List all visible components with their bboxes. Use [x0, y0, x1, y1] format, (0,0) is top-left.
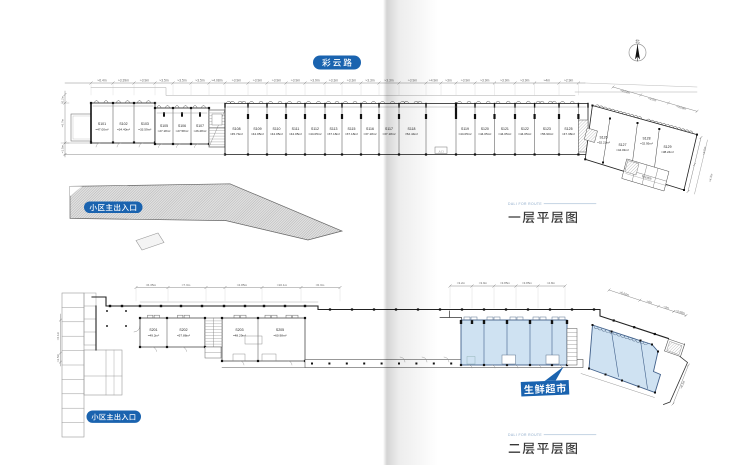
- svg-text:S107: S107: [196, 124, 204, 128]
- svg-text:≈3m: ≈3m: [445, 78, 452, 82]
- svg-text:S129: S129: [664, 145, 672, 149]
- svg-text:≈3.85m: ≈3.85m: [500, 281, 510, 285]
- svg-text:≈3.9m: ≈3.9m: [520, 78, 529, 82]
- svg-text:≈57.88m²: ≈57.88m²: [177, 333, 190, 337]
- svg-text:S205: S205: [276, 328, 284, 332]
- svg-text:S202: S202: [179, 328, 187, 332]
- svg-text:≈44.03m²: ≈44.03m²: [616, 148, 629, 152]
- svg-text:≈4.08m: ≈4.08m: [212, 78, 223, 82]
- svg-text:≈4m: ≈4m: [544, 78, 551, 82]
- svg-text:DALI FOR ROUTE: DALI FOR ROUTE: [508, 433, 542, 437]
- svg-text:≈6.7m: ≈6.7m: [60, 118, 64, 127]
- svg-text:≈3.5m: ≈3.5m: [195, 78, 204, 82]
- svg-text:≈3.9m: ≈3.9m: [232, 78, 241, 82]
- svg-text:≈3.85m: ≈3.85m: [522, 281, 532, 285]
- svg-text:≈3.2m: ≈3.2m: [457, 281, 466, 285]
- svg-text:≈44.05m²: ≈44.05m²: [251, 132, 264, 136]
- svg-text:≈3.9m: ≈3.9m: [140, 78, 149, 82]
- svg-text:≈27.58m²: ≈27.58m²: [176, 129, 189, 133]
- svg-text:S121: S121: [501, 127, 509, 131]
- svg-text:≈3.9m: ≈3.9m: [310, 78, 319, 82]
- svg-text:≈3.9m: ≈3.9m: [291, 78, 300, 82]
- svg-text:≈27.18m²: ≈27.18m²: [158, 129, 171, 133]
- svg-text:≈37.18m²: ≈37.18m²: [345, 132, 358, 136]
- svg-text:S119: S119: [461, 127, 469, 131]
- svg-text:≈3.3m: ≈3.3m: [329, 78, 338, 82]
- svg-text:S125: S125: [564, 127, 572, 131]
- svg-text:S110: S110: [273, 127, 281, 131]
- svg-text:≈44.05m²: ≈44.05m²: [498, 132, 511, 136]
- svg-text:S201: S201: [149, 328, 157, 332]
- svg-text:≈48.29m²: ≈48.29m²: [233, 333, 246, 337]
- svg-text:≈6.35m: ≈6.35m: [146, 283, 157, 287]
- svg-text:≈60.98m²: ≈60.98m²: [273, 333, 286, 337]
- svg-text:≈2.8m: ≈2.8m: [547, 281, 556, 285]
- svg-text:≈1.2m: ≈1.2m: [60, 95, 64, 103]
- svg-text:S122: S122: [521, 127, 529, 131]
- svg-text:≈3.3m: ≈3.3m: [365, 78, 374, 82]
- svg-text:S127: S127: [619, 143, 627, 147]
- svg-text:≈26.28m²: ≈26.28m²: [194, 129, 207, 133]
- svg-text:≈3.3m: ≈3.3m: [347, 78, 356, 82]
- svg-text:≈6.1m: ≈6.1m: [56, 331, 60, 340]
- svg-text:S112: S112: [311, 127, 319, 131]
- svg-text:≈44.05m²: ≈44.05m²: [518, 132, 531, 136]
- svg-text:S108: S108: [232, 127, 240, 131]
- svg-text:≈44.05m²: ≈44.05m²: [478, 132, 491, 136]
- svg-text:S103: S103: [141, 122, 149, 126]
- svg-text:≈47.00m²: ≈47.00m²: [95, 127, 108, 131]
- svg-text:≈44.05m²: ≈44.05m²: [289, 132, 302, 136]
- svg-text:S116: S116: [366, 127, 374, 131]
- svg-text:≈49.2m²: ≈49.2m²: [148, 333, 159, 337]
- svg-text:≈10.1m: ≈10.1m: [277, 283, 288, 287]
- svg-text:S126: S126: [600, 136, 608, 140]
- svg-text:≈37.18m²: ≈37.18m²: [363, 132, 376, 136]
- svg-text:≈33.59m²: ≈33.59m²: [138, 127, 151, 131]
- svg-text:≈37.18m²: ≈37.18m²: [327, 132, 340, 136]
- svg-text:≈44.05m²: ≈44.05m²: [308, 132, 321, 136]
- svg-text:≈45.74m²: ≈45.74m²: [230, 132, 243, 136]
- svg-text:≈3.9m: ≈3.9m: [479, 281, 488, 285]
- svg-text:S106: S106: [178, 124, 186, 128]
- svg-text:≈3.39m: ≈3.39m: [118, 78, 129, 82]
- svg-text:≈3.9m: ≈3.9m: [461, 78, 470, 82]
- svg-text:S111: S111: [292, 127, 300, 131]
- svg-text:S113: S113: [330, 127, 338, 131]
- svg-text:S120: S120: [481, 127, 489, 131]
- svg-text:S109: S109: [253, 127, 261, 131]
- svg-text:≈3.9m: ≈3.9m: [272, 78, 281, 82]
- svg-text:S105: S105: [160, 124, 168, 128]
- svg-text:≈3.5m: ≈3.5m: [177, 78, 186, 82]
- svg-text:S203: S203: [235, 328, 243, 332]
- svg-text:≈34.40m²: ≈34.40m²: [117, 127, 130, 131]
- svg-text:≈6.4m: ≈6.4m: [97, 78, 106, 82]
- svg-text:DALI FOR ROUTE: DALI FOR ROUTE: [508, 202, 542, 206]
- svg-text:≈47.38m²: ≈47.38m²: [562, 132, 575, 136]
- svg-text:S115: S115: [348, 127, 356, 131]
- svg-text:≈2.5m: ≈2.5m: [56, 353, 60, 362]
- svg-text:≈2.9m: ≈2.9m: [564, 78, 573, 82]
- svg-text:≈38.24m²: ≈38.24m²: [661, 150, 674, 154]
- svg-text:≈3.9m: ≈3.9m: [500, 78, 509, 82]
- svg-text:≈44.05m²: ≈44.05m²: [458, 132, 471, 136]
- svg-text:≈32.95m²: ≈32.95m²: [640, 142, 653, 146]
- svg-text:≈3.9m: ≈3.9m: [480, 78, 489, 82]
- svg-text:≈1.5m: ≈1.5m: [60, 144, 64, 153]
- svg-text:≈3.5m: ≈3.5m: [159, 78, 168, 82]
- svg-text:≈2.85m: ≈2.85m: [237, 283, 248, 287]
- svg-text:≈52.21m²: ≈52.21m²: [597, 141, 610, 145]
- svg-text:≈44.05m²: ≈44.05m²: [270, 132, 283, 136]
- svg-text:S123: S123: [543, 127, 551, 131]
- svg-text:≈7.3m: ≈7.3m: [182, 283, 191, 287]
- svg-text:≈56.90m²: ≈56.90m²: [540, 132, 553, 136]
- svg-text:S101: S101: [98, 122, 106, 126]
- svg-text:S102: S102: [119, 122, 127, 126]
- svg-text:≈6.3m: ≈6.3m: [316, 283, 325, 287]
- svg-text:S128: S128: [643, 137, 651, 141]
- svg-text:≈3.9m: ≈3.9m: [253, 78, 262, 82]
